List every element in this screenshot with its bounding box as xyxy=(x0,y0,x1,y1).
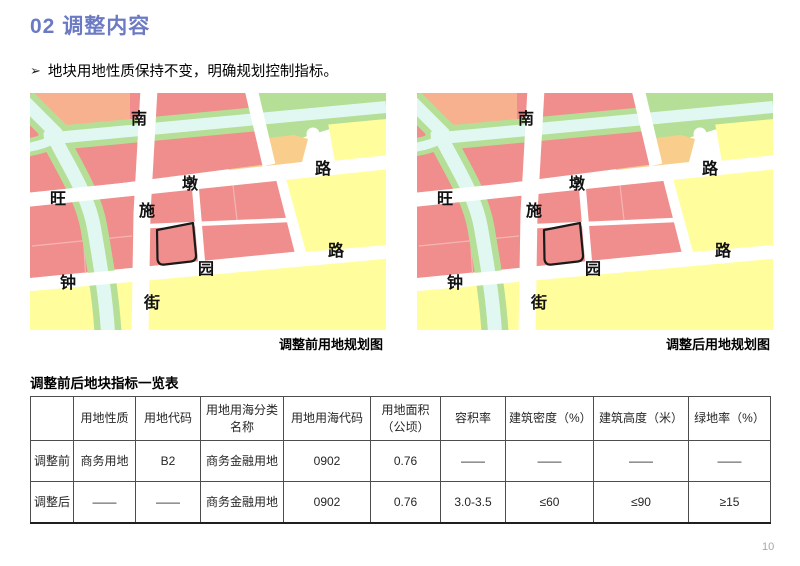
cell-value: 0902 xyxy=(284,482,371,523)
header-land-area: 用地面积（公顷） xyxy=(371,397,441,441)
header-plot-ratio: 容积率 xyxy=(441,397,506,441)
page-title: 02 调整内容 xyxy=(30,10,150,40)
road-label-shi: 施 xyxy=(526,201,542,220)
header-green-ratio: 绿地率（%） xyxy=(689,397,771,441)
header-building-density: 建筑密度（%） xyxy=(506,397,594,441)
cell-value: —— xyxy=(506,441,594,482)
table-title: 调整前后地块指标一览表 xyxy=(30,372,179,392)
road-label-yuan: 园 xyxy=(198,260,214,278)
header-building-height: 建筑高度（米） xyxy=(594,397,689,441)
road-label-nan: 南 xyxy=(131,109,147,128)
landuse-map-after-svg: 南 施 街 旺 墩 路 钟 园 路 xyxy=(417,93,773,330)
cell-value: 商务金融用地 xyxy=(201,441,284,482)
bullet-text: 地块用地性质保持不变，明确规划控制指标。 xyxy=(48,60,338,81)
road-label-lu-lower: 路 xyxy=(328,241,345,260)
road-label-dun: 墩 xyxy=(182,174,199,193)
road-label-jie: 街 xyxy=(530,293,547,312)
cell-value: —— xyxy=(136,482,201,523)
road-label-jie: 街 xyxy=(143,293,160,312)
road-label-zhong: 钟 xyxy=(447,273,463,292)
cell-value: 0902 xyxy=(284,441,371,482)
road-label-lu-lower: 路 xyxy=(715,241,732,260)
slide-page: 02 调整内容 ➢ 地块用地性质保持不变，明确规划控制指标。 南 施 街 旺 墩… xyxy=(0,0,800,566)
road-label-wang: 旺 xyxy=(50,190,66,208)
cell-value: —— xyxy=(689,441,771,482)
road-label-nan: 南 xyxy=(518,109,534,128)
cell-value: 0.76 xyxy=(371,441,441,482)
row-label: 调整后 xyxy=(31,482,74,523)
table-header-row: 用地性质 用地代码 用地用海分类名称 用地用海代码 用地面积（公顷） 容积率 建… xyxy=(31,397,771,441)
road-label-lu-upper: 路 xyxy=(702,159,719,178)
cell-value: B2 xyxy=(136,441,201,482)
header-row-label xyxy=(31,397,74,441)
indicator-table: 用地性质 用地代码 用地用海分类名称 用地用海代码 用地面积（公顷） 容积率 建… xyxy=(30,396,771,524)
header-class-name: 用地用海分类名称 xyxy=(201,397,284,441)
bullet-arrow-icon: ➢ xyxy=(30,63,41,79)
cell-value: ≤90 xyxy=(594,482,689,523)
landuse-map-before: 南 施 街 旺 墩 路 钟 园 路 xyxy=(30,93,386,330)
cell-value: ≤60 xyxy=(506,482,594,523)
table-row-after: 调整后 —— —— 商务金融用地 0902 0.76 3.0-3.5 ≤60 ≤… xyxy=(31,482,771,523)
cell-value: ≥15 xyxy=(689,482,771,523)
road-label-dun: 墩 xyxy=(569,174,586,193)
bullet-line: ➢ 地块用地性质保持不变，明确规划控制指标。 xyxy=(30,60,338,81)
cell-value: 商务用地 xyxy=(74,441,136,482)
road-label-wang: 旺 xyxy=(437,190,453,208)
table-row-before: 调整前 商务用地 B2 商务金融用地 0902 0.76 —— —— —— —— xyxy=(31,441,771,482)
cell-value: —— xyxy=(74,482,136,523)
header-land-code: 用地代码 xyxy=(136,397,201,441)
map-caption-after: 调整后用地规划图 xyxy=(417,334,773,353)
cell-value: 0.76 xyxy=(371,482,441,523)
cell-value: 3.0-3.5 xyxy=(441,482,506,523)
road-label-zhong: 钟 xyxy=(60,273,76,292)
row-label: 调整前 xyxy=(31,441,74,482)
landuse-map-after: 南 施 街 旺 墩 路 钟 园 路 xyxy=(417,93,773,330)
header-class-code: 用地用海代码 xyxy=(284,397,371,441)
page-number: 10 xyxy=(762,541,774,553)
cell-value: —— xyxy=(594,441,689,482)
map-caption-before: 调整前用地规划图 xyxy=(30,334,386,353)
header-land-nature: 用地性质 xyxy=(74,397,136,441)
road-label-shi: 施 xyxy=(139,201,155,220)
cell-value: —— xyxy=(441,441,506,482)
road-label-lu-upper: 路 xyxy=(315,159,332,178)
road-label-yuan: 园 xyxy=(585,260,601,278)
cell-value: 商务金融用地 xyxy=(201,482,284,523)
landuse-map-before-svg: 南 施 街 旺 墩 路 钟 园 路 xyxy=(30,93,386,330)
